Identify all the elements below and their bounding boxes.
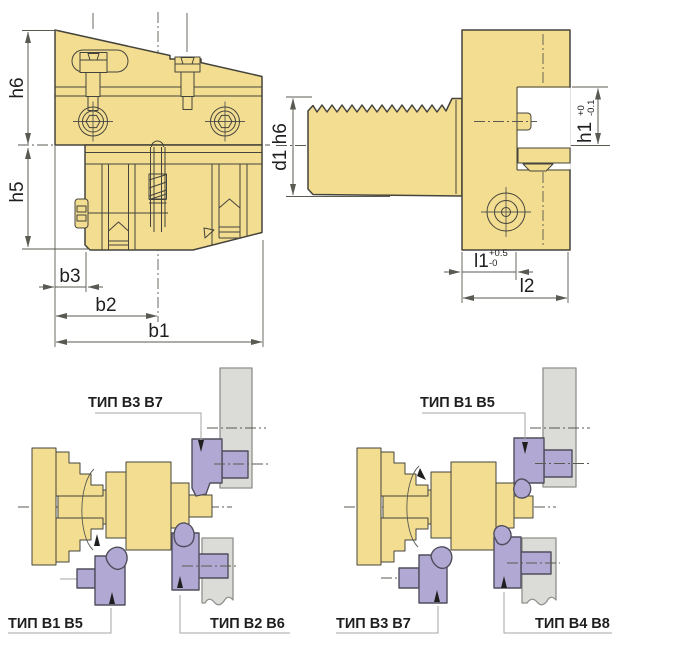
- dim-label-d1: d1 h6: [270, 123, 291, 171]
- dim-label-b1: b1: [148, 321, 169, 342]
- setup-left-bottom-right-label: ТИП B2 B6: [210, 616, 285, 632]
- setup-diagram-left: ТИП B3 B7 ТИП B1 B5 ТИП B2 B6: [8, 368, 290, 633]
- tool-bottom-left-b1b5: [60, 547, 127, 605]
- setup-diagram-right: ТИП B1 B5 ТИП B3 B7 ТИП B4 B8: [336, 368, 612, 633]
- technical-drawing-page: h6 h5 b3 b2 b1: [0, 0, 673, 653]
- dim-label-l1-lower-tol: -0: [489, 258, 497, 269]
- dim-label-l2: l2: [520, 276, 535, 297]
- dim-label-l1: l1: [474, 251, 489, 272]
- front-body-lower: [85, 145, 262, 250]
- dim-label-h1: h1: [575, 122, 596, 143]
- tool-bottom-right-b2b6: [172, 523, 238, 605]
- dim-label-b3: b3: [59, 266, 80, 287]
- threaded-shank: [308, 99, 462, 197]
- setup-left-top-label: ТИП B3 B7: [88, 395, 163, 411]
- drawing-canvas: h6 h5 b3 b2 b1: [0, 0, 673, 653]
- setup-right-bottom-left-label: ТИП B3 B7: [336, 616, 411, 632]
- dim-label-h5: h5: [7, 181, 28, 202]
- setup-right-bottom-right-label: ТИП B4 B8: [535, 616, 610, 632]
- front-view: h6 h5 b3 b2 b1: [7, 12, 270, 347]
- setup-left-bottom-left-label: ТИП B1 B5: [8, 616, 83, 632]
- side-clamp-boss: [75, 199, 88, 228]
- dim-label-b2: b2: [95, 295, 116, 316]
- side-view: d1 h6 h1 +0 -0.1 l1 +0.5 -0 l2: [270, 30, 612, 303]
- dim-label-h1-lower-tol: -0.1: [586, 100, 597, 116]
- support-plate: [518, 148, 570, 163]
- dim-label-h6: h6: [7, 77, 28, 98]
- setup-right-top-label: ТИП B1 B5: [420, 395, 495, 411]
